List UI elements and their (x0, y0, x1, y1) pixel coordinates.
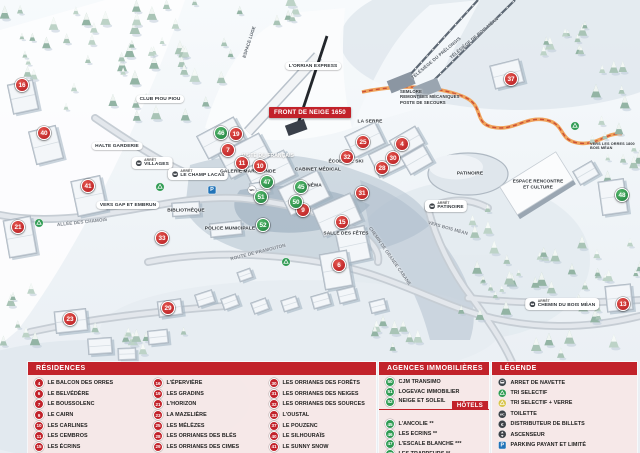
tree-shadow (75, 14, 80, 16)
map-label: VERS LES ORRES 1800 BOIS MÉAN (590, 142, 635, 150)
tree-shadow (597, 311, 603, 313)
map-label: SALLE DES FÊTES (323, 232, 368, 237)
legend-row: 33L'OUSTAL (269, 410, 374, 421)
map-label: CLUB PIOU PIOU (136, 95, 184, 103)
map-label: SEMLORE REMONTÉES MÉCANIQUES POSTE DE SE… (400, 89, 460, 105)
legende-header: LÉGENDE (492, 362, 637, 375)
map-marker-37: 37 (504, 72, 518, 86)
map-marker-40: 40 (37, 126, 51, 140)
legend-label: L'ESCALE BLANCHE *** (399, 441, 462, 447)
hotels-divider: HÔTELS (379, 409, 489, 417)
tree-shadow (577, 42, 583, 44)
legende-row: €DISTRIBUTEUR DE BILLETS (498, 419, 637, 429)
map-label: ARRÊTVILLAGES (132, 157, 173, 169)
legende-row: PPARKING PAYANT ET LIMITÉ (498, 440, 637, 450)
tree-shadow (580, 54, 586, 56)
legend-row: 7LE BOUSSOLENC (34, 399, 153, 410)
tree-shadow (275, 25, 282, 28)
map-wc-map-icon: WC (248, 186, 257, 195)
legend-label: LES ORRIANES DES BLÉS (167, 433, 237, 439)
tree-shadow (150, 56, 156, 59)
legend-agences-hotels: AGENCES IMMOBILIÈRES 50CJM TRANSIMO51LOG… (379, 362, 489, 453)
tree-shadow (94, 332, 101, 335)
map-marker-23: 23 (63, 312, 77, 326)
map-label: ARRÊTPATINOIRE (425, 200, 467, 212)
legend-row: 19LES GRADINS (153, 389, 269, 400)
legende-label: TRI SELECTIF (511, 390, 548, 396)
tree-shadow (621, 94, 627, 96)
tree-shadow (564, 36, 570, 38)
legend-residences: RÉSIDENCES 4LE BALCON DES ORRES6LE BELVÉ… (28, 362, 376, 453)
tree-shadow (19, 13, 25, 15)
tree-shadow (600, 125, 606, 128)
tree-shadow (584, 28, 589, 30)
recycle-icon (35, 219, 44, 228)
legend-row: 30LES ORRIANES DES FORÊTS (269, 378, 374, 389)
legend-number-badge: 23 (153, 410, 163, 420)
hotels-header: HÔTELS (452, 401, 488, 410)
legend-row: 23LA MAZELIÈRE (153, 410, 269, 421)
map-marker-19: 19 (229, 127, 243, 141)
building (147, 329, 171, 348)
recycle-icon (156, 183, 165, 192)
legend-label: LES ORRIANES DES CIMES (167, 444, 240, 450)
map-label: BIBLIOTHÈQUE (167, 209, 204, 214)
legend-label: L'ÉPERVIÈRE (167, 380, 203, 386)
map-marker-28: 28 (375, 161, 389, 175)
map-marker-45: 45 (294, 180, 308, 194)
legend-number-badge: 45 (385, 419, 395, 429)
map-label: LA SERRE (358, 120, 383, 125)
legend-label: CJM TRANSIMO (399, 379, 441, 385)
tree-shadow (559, 357, 566, 360)
map-marker-21: 21 (11, 220, 25, 234)
resort-map-page: FRONT DE NEIGE 1650 RÉSIDENCES 4LE BALCO… (0, 0, 640, 453)
tree-shadow (239, 14, 245, 16)
tree-shadow (598, 319, 603, 321)
map-label: ESPACE RENCONTRE ET CULTURE (513, 179, 564, 190)
map-parking-icon: P (208, 186, 217, 195)
map-label: GALERIE MARCHANDE (220, 170, 276, 175)
legend-label: LES ECRINS ** (399, 431, 438, 437)
map-recycle-icon (571, 122, 580, 131)
legend-row: 31LES ORRIANES DES NEIGES (269, 389, 374, 400)
tree-shadow (502, 292, 506, 294)
legend-label: LES CEMBROS (48, 433, 88, 439)
tree-shadow (604, 139, 609, 141)
recycle-icon (571, 122, 580, 131)
legend-label: LES MÉLÈZES (167, 423, 205, 429)
tree-shadow (291, 21, 297, 23)
tree-shadow (12, 300, 17, 302)
legend-number-badge: 41 (269, 442, 279, 452)
building (87, 337, 115, 357)
legende-row: ARRET DE NAVETTE (498, 378, 637, 388)
legend-label: L'HORIZON (167, 401, 197, 407)
bus-icon (135, 160, 142, 167)
wc-icon: WC (498, 410, 507, 419)
legend-row: 11LES CEMBROS (34, 431, 153, 442)
legend-label: LOGEVAC IMMOBILIER (399, 389, 460, 395)
tree-shadow (223, 46, 229, 48)
legend-row: 45L'ANCOLIE ** (385, 419, 489, 429)
recycle-icon (498, 389, 507, 398)
legend-number-badge: 9 (34, 410, 44, 420)
map-label: PISTE DU FRANÇAIS (242, 153, 294, 159)
tree-shadow (127, 336, 133, 339)
legend-row: 28LES ORRIANES DES BLÉS (153, 431, 269, 442)
tree-shadow (635, 276, 640, 278)
legende-label: TOILETTE (511, 411, 537, 417)
legend-number-badge: 7 (34, 399, 44, 409)
tree-shadow (483, 283, 487, 285)
tree-shadow (584, 289, 590, 291)
legend-symbols: LÉGENDE ARRET DE NAVETTETRI SELECTIFTRI … (492, 362, 637, 453)
tree-shadow (125, 341, 131, 344)
legend-row: 32LES ORRIANES DES SOURCES (269, 399, 374, 410)
map-recycle-icon (282, 258, 291, 267)
legende-label: ARRET DE NAVETTE (511, 380, 566, 386)
ascenseur-icon (498, 430, 507, 439)
legend-label: LES CARLINES (48, 423, 88, 429)
tree-shadow (487, 212, 492, 214)
legend-row: 48LES TRAPPEURS ** (385, 449, 489, 453)
legend-row: 25LES MÉLÈZES (153, 420, 269, 431)
tree-shadow (92, 32, 99, 35)
legend-number-badge: 6 (34, 389, 44, 399)
legend-number-badge: 51 (385, 387, 395, 397)
legende-label: TRI SELECTIF + VERRE (511, 400, 573, 406)
tree-shadow (22, 39, 26, 41)
legend-row: 29LES ORRIANES DES CIMES (153, 442, 269, 453)
legend-number-badge: 25 (153, 421, 163, 431)
bus-icon (428, 203, 435, 210)
tree-shadow (629, 246, 635, 248)
legend-number-badge: 10 (34, 421, 44, 431)
tree-shadow (28, 65, 33, 67)
map-label: ARRÊTCHEMIN DU BOIS MÉAN (525, 298, 599, 310)
legend-number-badge: 16 (153, 378, 163, 388)
tree-shadow (460, 314, 466, 316)
tree-shadow (490, 291, 495, 293)
map-marker-33: 33 (155, 231, 169, 245)
legend-row: 37LE POUZENC (269, 420, 374, 431)
map-label: L'ORRIAN EXPRESS (285, 62, 341, 70)
map-marker-31: 31 (355, 186, 369, 200)
legend-number-badge: 11 (34, 431, 44, 441)
legend-row: 15LES ÉCRINS (34, 442, 153, 453)
legend-row: 50CJM TRANSIMO (385, 377, 489, 387)
legend-row: 9LE CAIRN (34, 410, 153, 421)
legend-label: LES GRADINS (167, 391, 204, 397)
tree-shadow (542, 55, 549, 58)
bus-icon (171, 171, 178, 178)
legend-label: LES ÉCRINS (48, 444, 81, 450)
map-label: PATINOIRE (457, 172, 483, 177)
legend-number-badge: 37 (269, 421, 279, 431)
tree-shadow (73, 91, 79, 93)
agences-header: AGENCES IMMOBILIÈRES (379, 362, 489, 375)
hotels-list: 45L'ANCOLIE **46LES ECRINS **47L'ESCALE … (379, 417, 489, 453)
tree-shadow (601, 73, 607, 75)
legend-number-badge: 19 (153, 389, 163, 399)
tree-shadow (162, 44, 167, 46)
map-marker-29: 29 (161, 301, 175, 315)
legend-label: LE BELVÉDÈRE (48, 391, 90, 397)
legend-row: 41LE SUNNY SNOW (269, 442, 374, 453)
residences-columns: 4LE BALCON DES ORRES6LE BELVÉDÈRE7LE BOU… (28, 375, 376, 452)
map-recycle-icon (156, 183, 165, 192)
map-marker-4: 4 (395, 137, 409, 151)
map-label: CABINET MÉDICAL (295, 168, 341, 173)
tree-shadow (596, 258, 602, 261)
legend-label: NEIGE ET SOLEIL (399, 398, 446, 404)
legend-row: 4LE BALCON DES ORRES (34, 378, 153, 389)
legend-label: LES ORRIANES DES SOURCES (283, 401, 365, 407)
map-marker-50: 50 (289, 195, 303, 209)
residences-column: 16L'ÉPERVIÈRE19LES GRADINS21L'HORIZON23L… (153, 378, 269, 452)
tree-shadow (495, 298, 500, 300)
legend-number-badge: 31 (269, 389, 279, 399)
legend-label: L'OUSTAL (283, 412, 310, 418)
tree-shadow (545, 45, 551, 47)
legend-number-badge: 52 (385, 397, 395, 407)
legend-number-badge: 29 (153, 442, 163, 452)
svg-text:P: P (210, 187, 214, 193)
map-marker-32: 32 (340, 150, 354, 164)
bus-icon (498, 378, 507, 387)
parking-icon: P (208, 186, 217, 195)
legend-number-badge: 47 (385, 439, 395, 449)
legende-label: PARKING PAYANT ET LIMITÉ (511, 442, 586, 448)
legend-number-badge: 33 (269, 410, 279, 420)
legende-row: TRI SELECTIF + VERRE (498, 398, 637, 408)
map-label: ARRÊTLE CHAMP LACAS (168, 168, 228, 180)
map-marker-30: 30 (386, 151, 400, 165)
tree-shadow (66, 110, 71, 112)
legende-row: TRI SELECTIF (498, 388, 637, 398)
front-de-neige-banner: FRONT DE NEIGE 1650 (269, 107, 351, 118)
tree-shadow (392, 351, 398, 353)
map-marker-11: 11 (235, 156, 249, 170)
map-recycle-icon (35, 219, 44, 228)
tree-shadow (25, 58, 30, 60)
tree-shadow (90, 44, 97, 47)
map-marker-41: 41 (81, 179, 95, 193)
legend-label: LE BALCON DES ORRES (48, 380, 114, 386)
tree-shadow (183, 335, 188, 337)
map-marker-7: 7 (221, 143, 235, 157)
legend-row: 10LES CARLINES (34, 420, 153, 431)
tree-shadow (165, 9, 172, 12)
map-label: POLICE MUNICIPALE (205, 227, 255, 232)
legend-row: 40LE SILHOURAÏS (269, 431, 374, 442)
building (118, 348, 139, 363)
tree-shadow (230, 57, 235, 59)
legende-row: ASCENSEUR (498, 429, 637, 439)
tree-shadow (65, 43, 72, 46)
legende-label: ASCENSEUR (511, 432, 545, 438)
legend-number-badge: 21 (153, 399, 163, 409)
legend-label: LE SUNNY SNOW (283, 444, 329, 450)
map-marker-16: 16 (15, 78, 29, 92)
tree-shadow (608, 161, 612, 163)
map-marker-47: 47 (260, 175, 274, 189)
legend-row: 47L'ESCALE BLANCHE *** (385, 439, 489, 449)
bus-stop-name: CHEMIN DU BOIS MÉAN (538, 303, 596, 308)
euro-icon: € (498, 420, 507, 429)
legend-label: LE POUZENC (283, 423, 318, 429)
map-label: HALTE GARDERIE (92, 142, 143, 150)
map-marker-46: 46 (214, 126, 228, 140)
map-marker-10: 10 (253, 159, 267, 173)
tree-shadow (597, 278, 603, 280)
legend-number-badge: 50 (385, 377, 395, 387)
residences-header: RÉSIDENCES (28, 362, 376, 375)
bus-stop-name: LE CHAMP LACAS (180, 173, 224, 178)
legend-number-badge: 32 (269, 399, 279, 409)
legende-label: DISTRIBUTEUR DE BILLETS (511, 421, 585, 427)
map-marker-15: 15 (335, 215, 349, 229)
legend-label: LES ORRIANES DES NEIGES (283, 391, 359, 397)
parking-icon: P (498, 441, 507, 450)
legend-number-badge: 48 (385, 449, 395, 453)
legende-row: WCTOILETTE (498, 409, 637, 419)
legend-label: LE BOUSSOLENC (48, 401, 95, 407)
legend-number-badge: 28 (153, 431, 163, 441)
tree-shadow (17, 328, 22, 330)
tree-shadow (622, 163, 628, 165)
legend-row: 6LE BELVÉDÈRE (34, 389, 153, 400)
tree-shadow (131, 48, 136, 50)
tree-shadow (539, 260, 544, 262)
legend-row: 46LES ECRINS ** (385, 429, 489, 439)
bus-icon (529, 301, 536, 308)
map-marker-25: 25 (356, 135, 370, 149)
map-marker-13: 13 (616, 297, 630, 311)
bus-stop-name: PATINOIRE (437, 205, 463, 210)
legend-row: 21L'HORIZON (153, 399, 269, 410)
svg-text:P: P (500, 442, 504, 448)
tree-shadow (123, 75, 128, 77)
svg-text:WC: WC (500, 412, 505, 416)
tree-shadow (506, 264, 512, 267)
wc-map-icon: WC (248, 186, 257, 195)
tree-shadow (87, 63, 92, 65)
legend-label: LA MAZELIÈRE (167, 412, 207, 418)
tree-shadow (2, 345, 9, 348)
tree-shadow (204, 106, 211, 109)
recycle-icon (282, 258, 291, 267)
map-label: VERS GAP ET EMBRUN (96, 201, 159, 209)
legend-number-badge: 40 (269, 431, 279, 441)
legend-label: LES ORRIANES DES FORÊTS (283, 380, 361, 386)
recycle-verre-icon (498, 399, 507, 408)
tree-shadow (542, 256, 549, 259)
legend-row: 51LOGEVAC IMMOBILIER (385, 387, 489, 397)
map-marker-48: 48 (615, 188, 629, 202)
legend-number-badge: 46 (385, 429, 395, 439)
tree-shadow (120, 61, 126, 64)
residences-column: 30LES ORRIANES DES FORÊTS31LES ORRIANES … (269, 378, 374, 452)
legend-row: 16L'ÉPERVIÈRE (153, 378, 269, 389)
residences-column: 4LE BALCON DES ORRES6LE BELVÉDÈRE7LE BOU… (34, 378, 153, 452)
legend-label: LE SILHOURAÏS (283, 433, 325, 439)
tree-shadow (597, 276, 602, 278)
legend-number-badge: 30 (269, 378, 279, 388)
tree-shadow (633, 151, 638, 153)
bus-stop-name: VILLAGES (144, 162, 169, 167)
legende-list: ARRET DE NAVETTETRI SELECTIFTRI SELECTIF… (492, 375, 637, 450)
tree-shadow (194, 5, 199, 7)
legend-label: LE CAIRN (48, 412, 74, 418)
map-marker-52: 52 (256, 218, 270, 232)
tree-shadow (518, 276, 523, 278)
svg-text:WC: WC (249, 188, 255, 192)
legend-number-badge: 4 (34, 378, 44, 388)
map-marker-6: 6 (332, 258, 346, 272)
legend-label: L'ANCOLIE ** (399, 421, 434, 427)
legend-number-badge: 15 (34, 442, 44, 452)
tree-shadow (32, 41, 37, 43)
